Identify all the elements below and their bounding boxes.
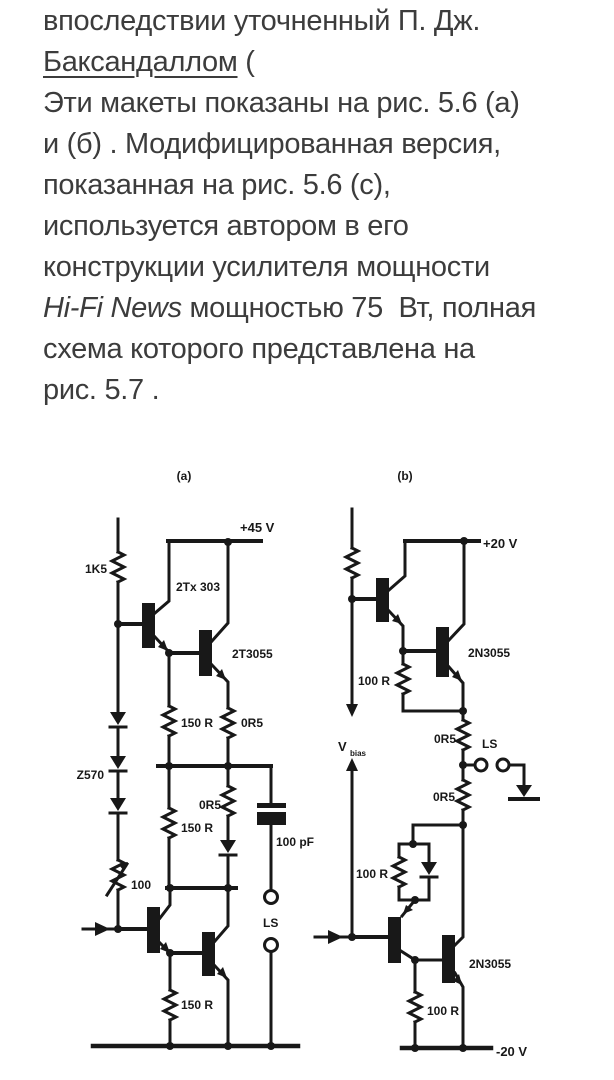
label-vbias-sub: bias: [350, 749, 367, 758]
label-100r-bottom-b: 100 R: [427, 1004, 459, 1018]
text-line-5: показанная на рис. 5.6 (с),: [43, 165, 604, 206]
text-line-2-rest: (: [238, 46, 255, 78]
circuit-panel-b: (b) +20 V 2N3055 100 R 0R5 LS 0R5 100 R …: [315, 469, 538, 1059]
label-0r5-upper-b: 0R5: [434, 732, 456, 746]
speaker-terminals-b: [475, 759, 509, 771]
reader-page: впоследствии уточненный П. Дж. Баксандал…: [0, 0, 614, 1080]
paragraph-text: впоследствии уточненный П. Дж. Баксандал…: [43, 1, 604, 411]
figure-image: (a) +45 V 1K5 2Tx 303 2T3055 150 R 0R5 Z…: [0, 440, 614, 1080]
resistor-100r-bottom-b: [409, 992, 421, 1022]
wires-a: [83, 519, 298, 1046]
resistor-150r-bottom-a: [164, 990, 176, 1020]
label-preset-100: 100: [131, 878, 151, 892]
resistor-bias-top-b: [346, 548, 358, 578]
panel-a-label: (a): [177, 469, 192, 483]
label-0r5-upper-a: 0R5: [241, 716, 263, 730]
text-line-8: Hi-Fi News мощностью 75 Вт, полная: [43, 288, 604, 329]
text-line-9: схема которого представлена на: [43, 329, 604, 370]
circuit-panel-a: (a) +45 V 1K5 2Tx 303 2T3055 150 R 0R5 Z…: [77, 469, 314, 1050]
ground-symbol: [510, 785, 538, 799]
text-line-10: рис. 5.7 .: [43, 370, 604, 411]
label-2t3055: 2T3055: [232, 647, 273, 661]
label-vbias: V: [338, 739, 347, 754]
resistor-1k5: [112, 552, 124, 582]
label-supply-pos-b: +20 V: [483, 536, 518, 551]
text-line-2: Баксандаллом (: [43, 42, 604, 83]
input-arrow-a: [95, 922, 110, 936]
transistor-q3-a: [147, 907, 170, 953]
text-line-7: конструкции усилителя мощности: [43, 247, 604, 288]
transistor-q1-a: [142, 603, 168, 651]
text-line-4: и (б) . Модифицированная версия,: [43, 124, 604, 165]
resistor-0r5-upper-b: [457, 720, 469, 750]
label-1k5: 1K5: [85, 562, 107, 576]
resistor-150r-upper-a: [163, 706, 175, 736]
label-z570: Z570: [77, 768, 105, 782]
label-supply-a: +45 V: [240, 520, 275, 535]
diode-lower-a: [220, 840, 236, 855]
resistor-0r5-lower-b: [457, 780, 469, 810]
text-line-1: впоследствии уточненный П. Дж.: [43, 1, 604, 42]
input-arrow-b: [328, 930, 343, 944]
resistor-0r5-lower-a: [222, 786, 234, 816]
diode-parallel-b: [421, 862, 437, 877]
circuit-diagram: (a) +45 V 1K5 2Tx 303 2T3055 150 R 0R5 Z…: [0, 440, 614, 1080]
panel-b-label: (b): [397, 469, 412, 483]
baxandall-link[interactable]: Баксандаллом: [43, 46, 238, 78]
transistor-q2-b: [436, 627, 462, 681]
label-100pf: 100 pF: [276, 835, 314, 849]
text-line-8-rest: мощностью 75 Вт, полная: [182, 292, 536, 324]
resistor-100r-upper-b: [397, 664, 409, 694]
resistor-100r-parallel-b: [393, 857, 405, 887]
label-150r-mid-a: 150 R: [181, 821, 213, 835]
text-line-3: Эти макеты показаны на рис. 5.6 (а): [43, 83, 604, 124]
label-2tx303: 2Tx 303: [176, 580, 220, 594]
label-2n3055-lower: 2N3055: [469, 957, 511, 971]
label-ls-b: LS: [482, 737, 497, 751]
resistor-150r-mid-a: [163, 808, 175, 838]
label-ls-a: LS: [263, 916, 278, 930]
transistor-q2-a: [199, 630, 226, 680]
transistor-q4-a: [202, 932, 227, 978]
transistor-q3-b: [388, 905, 413, 963]
label-0r5-lower-a: 0R5: [199, 798, 221, 812]
label-supply-neg-b: -20 V: [496, 1044, 527, 1059]
junction-dots-a: [114, 538, 275, 1050]
hifi-news-italic: Hi-Fi News: [43, 292, 182, 324]
label-100r-upper-b: 100 R: [358, 674, 390, 688]
label-2n3055-upper: 2N3055: [468, 646, 510, 660]
label-100r-mid-b: 100 R: [356, 867, 388, 881]
vbias-arrow: [346, 704, 358, 771]
label-150r-bottom-a: 150 R: [181, 998, 213, 1012]
preset-resistor-100: [107, 860, 128, 895]
transistor-q1-b: [376, 578, 402, 624]
resistor-0r5-upper-a: [222, 708, 234, 738]
capacitor-100pf: [257, 803, 286, 825]
text-line-6: используется автором в его: [43, 206, 604, 247]
label-150r-upper-a: 150 R: [181, 716, 213, 730]
label-0r5-lower-b: 0R5: [433, 790, 455, 804]
